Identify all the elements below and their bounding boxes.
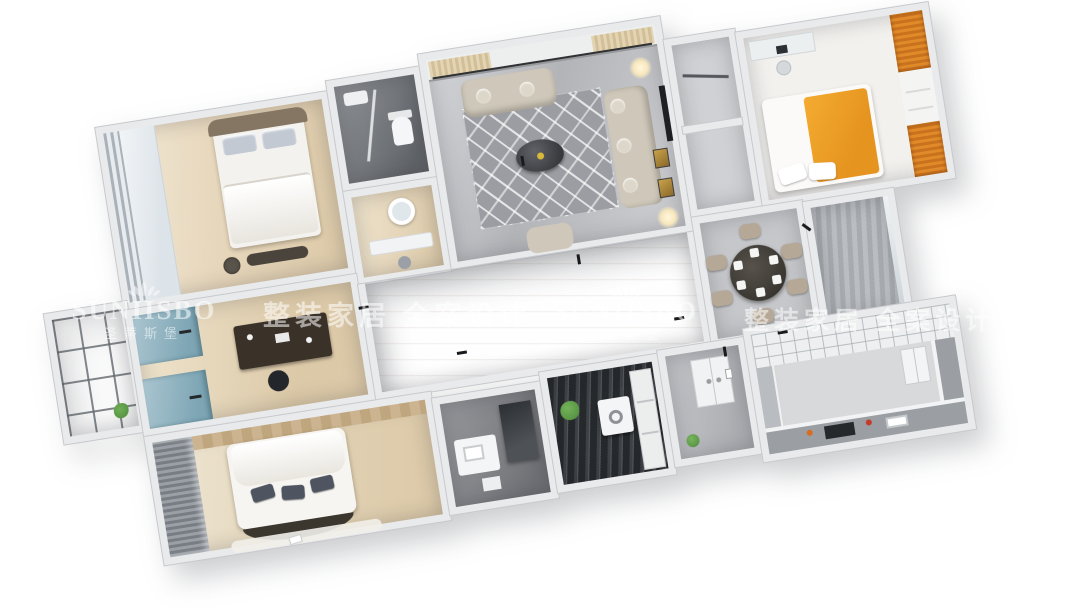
cabinet-handle: [179, 329, 191, 334]
wardrobe-orange-slats: [889, 10, 931, 72]
place-setting: [736, 280, 746, 290]
sofa-pillow: [475, 88, 492, 105]
shelf: [637, 399, 654, 404]
condiment-jar: [865, 419, 872, 426]
writing-desk: [233, 312, 333, 370]
pillow: [261, 126, 298, 150]
shelf: [642, 430, 659, 435]
dining-chair: [780, 242, 803, 260]
light-switch: [725, 368, 733, 379]
plant: [113, 402, 130, 419]
wardrobe-orange-slats: [907, 121, 948, 178]
notebook: [275, 332, 290, 343]
pillow: [281, 485, 305, 501]
fridge: [900, 346, 931, 386]
sofa-pillow: [609, 98, 626, 115]
sofa-pillow: [622, 177, 639, 194]
dining-chair: [786, 277, 809, 295]
room-bathroom: [432, 381, 559, 515]
pillow: [250, 483, 276, 503]
mug: [306, 337, 313, 344]
mug: [246, 334, 253, 341]
room-vanity: [343, 177, 452, 286]
place-setting: [749, 248, 759, 258]
armchair: [525, 222, 575, 255]
shower-glass: [367, 90, 376, 162]
art-frame: [653, 148, 671, 169]
floorplan-render-scene: SUNIISBO 圣蒂斯堡 整装家居 全案设计 / SUNIISBO 圣蒂斯堡 …: [0, 0, 1080, 608]
place-setting: [755, 287, 765, 297]
cooktop: [824, 422, 856, 440]
room-laundry: [539, 354, 677, 493]
wardrobe: [889, 10, 947, 177]
bed-bench: [246, 245, 309, 267]
closet-divider-wall: [682, 118, 743, 134]
pillow: [777, 161, 808, 186]
side-table: [222, 256, 241, 275]
wardrobe-panel-seam: [908, 105, 933, 111]
dining-chair: [752, 307, 775, 325]
bed: [211, 110, 322, 249]
balcony-glass: [883, 196, 906, 310]
condiment-jar: [806, 429, 813, 436]
mirror-cabinet: [499, 400, 540, 462]
desk-chair: [775, 59, 792, 76]
cabinet-knob: [716, 377, 722, 383]
place-setting: [769, 255, 779, 265]
teal-cabinet: [132, 306, 203, 365]
curtain: [152, 437, 210, 558]
round-mirror: [386, 196, 417, 227]
sink: [463, 444, 485, 462]
hall-cabinet: [690, 355, 735, 408]
sink: [343, 90, 369, 107]
room-living: [418, 16, 694, 270]
dining-chair: [711, 289, 734, 307]
sofa-pillow: [518, 81, 535, 98]
fridge-seam: [913, 348, 919, 382]
cabinet-handle: [189, 395, 201, 400]
closet-shelf: [683, 74, 729, 78]
dining-chair: [705, 254, 728, 272]
kitchen-sink: [885, 414, 908, 428]
wardrobe-panel-seam: [906, 88, 931, 94]
room-kids-bedroom: [735, 2, 955, 208]
tatami-bed: [761, 83, 884, 193]
sofa-pillow: [615, 137, 632, 154]
place-setting: [733, 260, 743, 270]
duvet: [223, 172, 319, 245]
storage-box: [482, 476, 502, 492]
washer-door: [608, 409, 624, 425]
shelving-unit: [629, 368, 666, 470]
laptop: [776, 45, 788, 55]
pillow: [221, 132, 258, 156]
plant: [686, 433, 701, 448]
apartment-plan: [74, 0, 1006, 568]
room-shower-bathroom: [326, 66, 437, 191]
room-guest-bedroom: [95, 91, 356, 310]
vanity-counter: [368, 231, 434, 256]
floor-lamp: [628, 55, 653, 80]
cabinet-knob: [706, 379, 712, 385]
floor-lamp: [656, 205, 681, 230]
toilet: [390, 115, 414, 146]
vanity-cabinet: [454, 434, 501, 476]
dining-chair: [738, 222, 761, 240]
counter-bottom: [766, 397, 969, 454]
washing-machine: [597, 396, 634, 437]
office-chair: [267, 369, 291, 393]
teal-cabinet: [142, 370, 213, 429]
art-frame: [657, 177, 675, 198]
desk: [748, 31, 816, 61]
pillow: [309, 474, 335, 493]
plant: [559, 400, 581, 422]
stool: [397, 255, 412, 270]
pillow: [809, 162, 837, 180]
place-setting: [772, 274, 782, 284]
